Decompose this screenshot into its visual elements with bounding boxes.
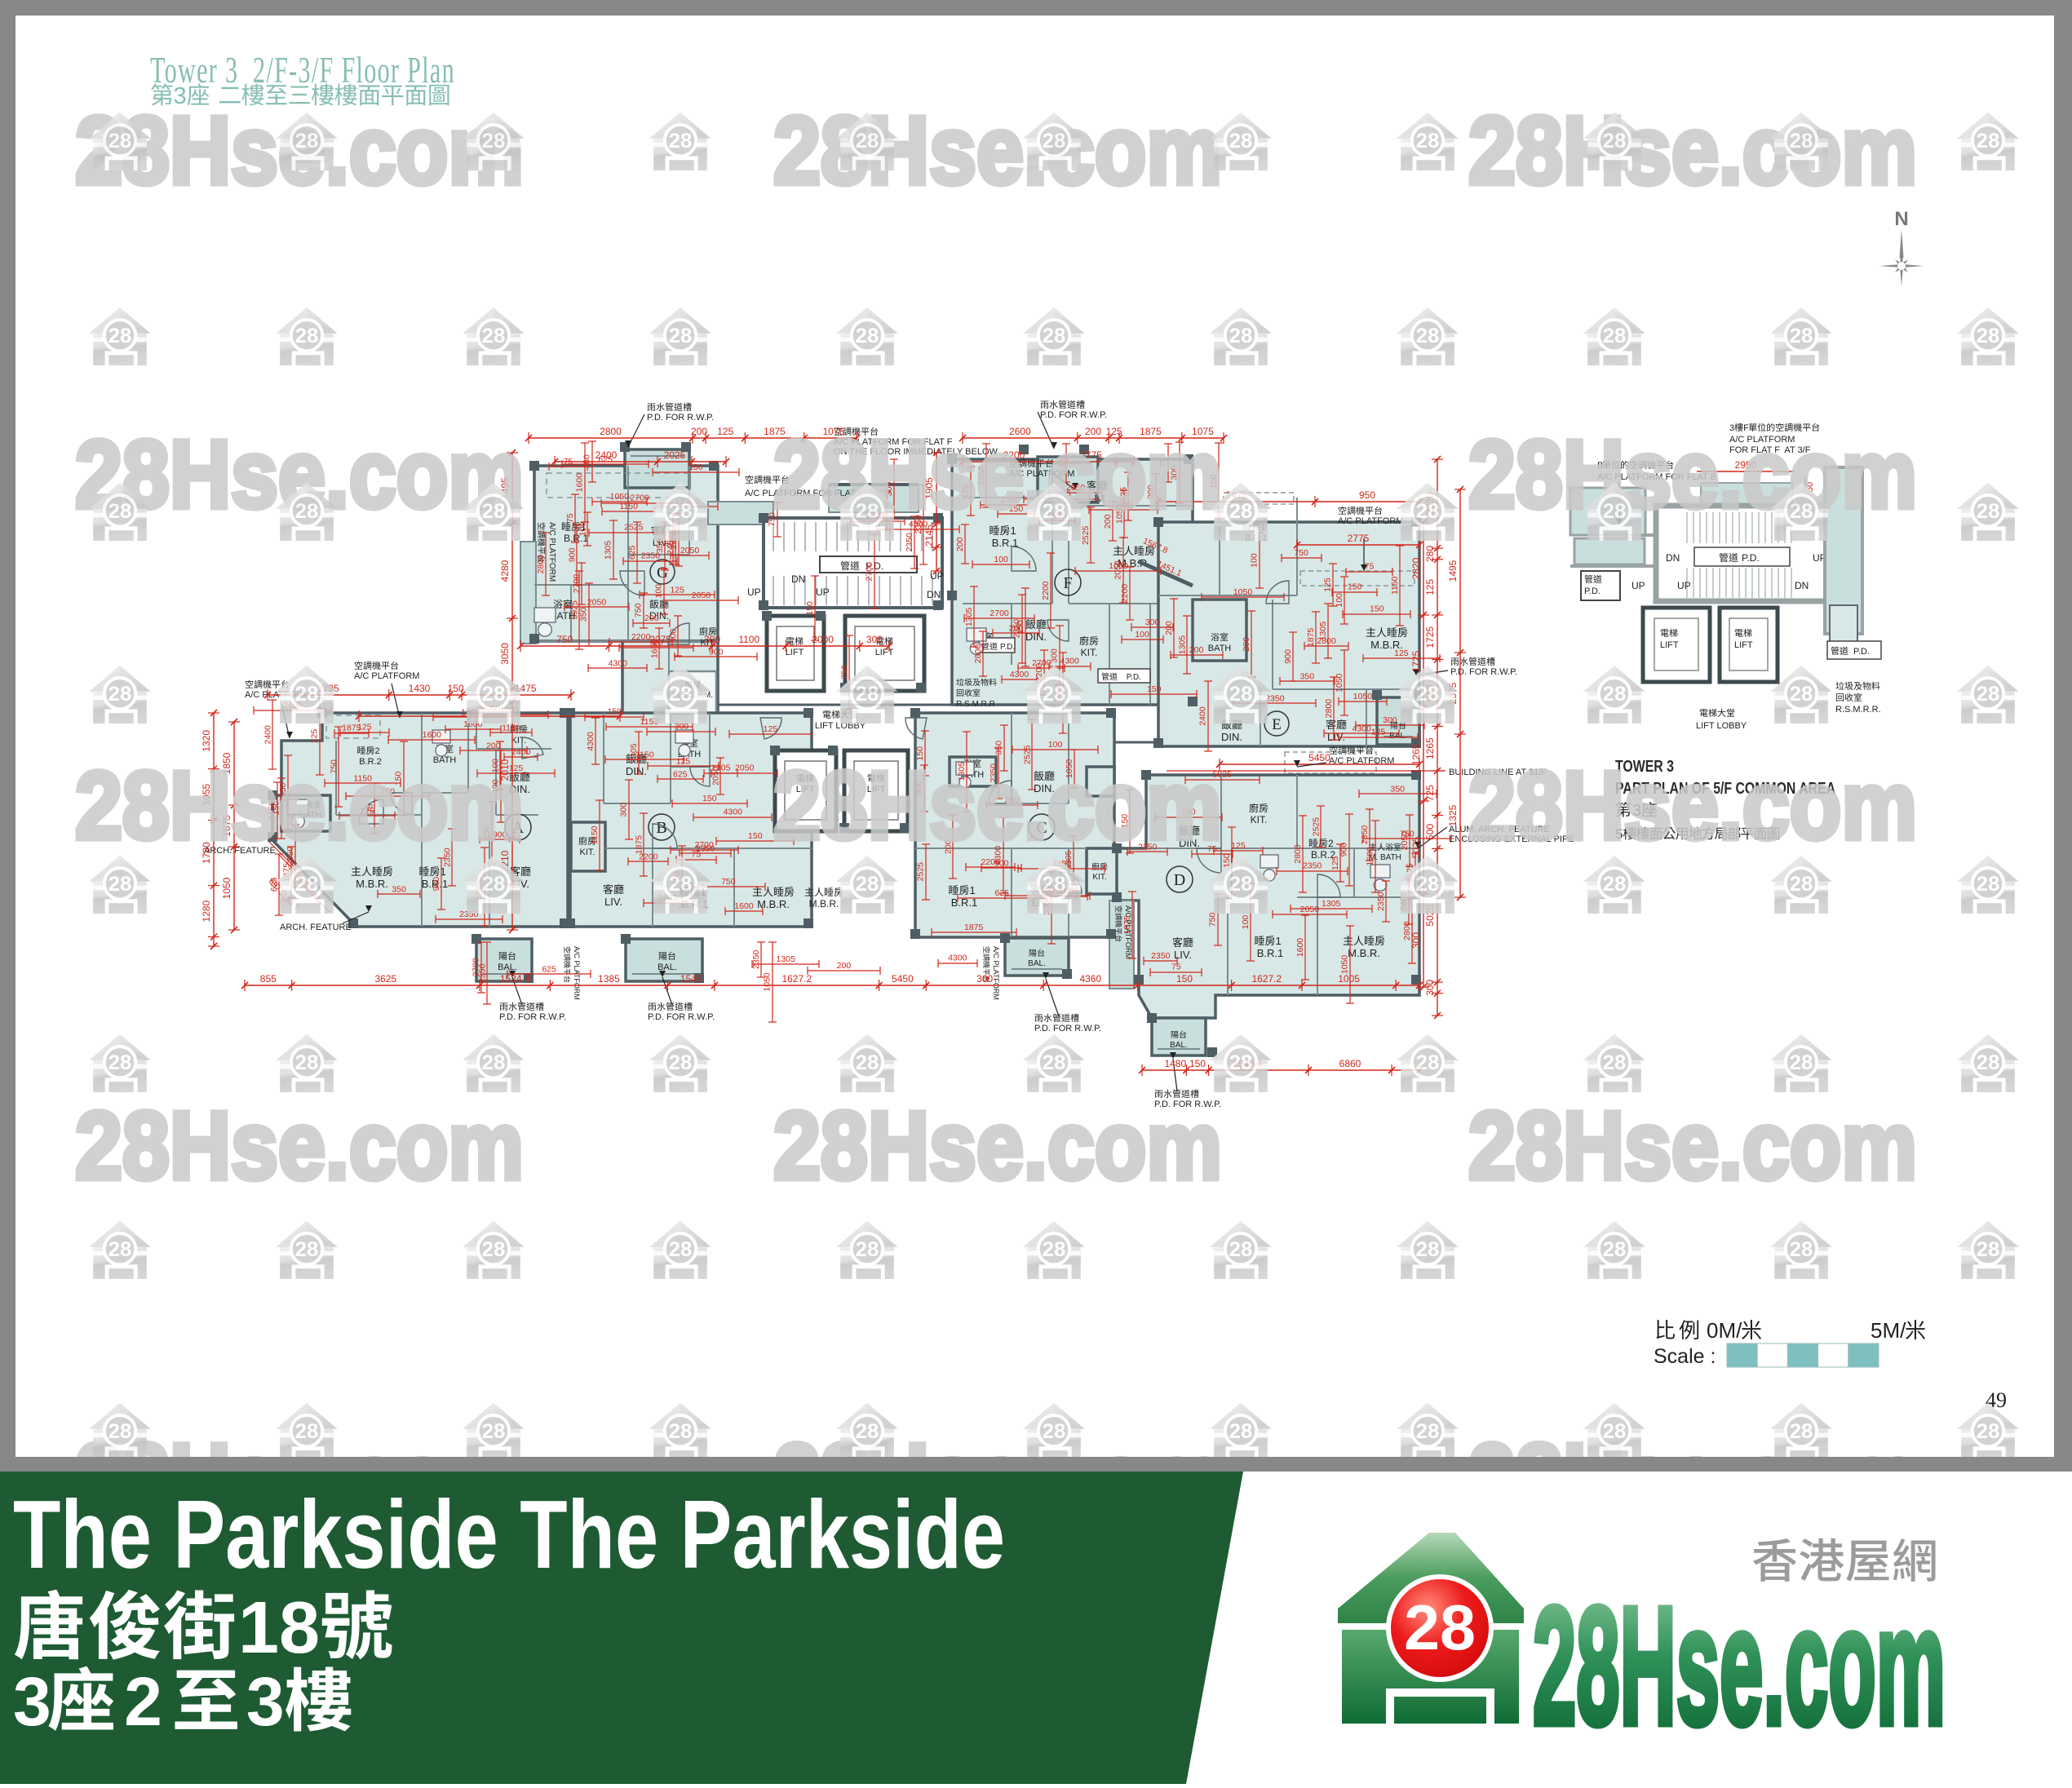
svg-text:1050: 1050 (610, 492, 630, 502)
svg-text:1305: 1305 (1322, 899, 1341, 909)
svg-text:1100: 1100 (738, 634, 759, 645)
svg-text:UP: UP (1677, 580, 1691, 591)
svg-text:1305: 1305 (604, 540, 613, 560)
svg-text:28Hse.com: 28Hse.com (1468, 1092, 1917, 1200)
svg-text:1600: 1600 (649, 640, 659, 659)
svg-text:UP: UP (816, 586, 830, 598)
svg-text:350: 350 (1300, 671, 1315, 681)
svg-text:2700: 2700 (990, 609, 1009, 618)
svg-text:2: 2 (1328, 838, 1334, 849)
svg-text:900: 900 (994, 858, 1009, 868)
svg-text:125: 125 (1330, 856, 1340, 870)
svg-text:75: 75 (1365, 562, 1375, 572)
svg-text:1875: 1875 (342, 724, 361, 733)
svg-text:2050: 2050 (1300, 905, 1320, 914)
svg-text:100: 100 (688, 462, 703, 472)
svg-text:28Hse.com: 28Hse.com (1468, 97, 1917, 205)
svg-text:2050: 2050 (692, 591, 711, 600)
svg-text:5450: 5450 (1308, 752, 1330, 763)
svg-text:100: 100 (1241, 915, 1251, 930)
svg-text:UP: UP (1631, 580, 1645, 591)
svg-text:1305: 1305 (629, 743, 639, 763)
svg-text:4300: 4300 (1353, 724, 1372, 733)
svg-text:125: 125 (670, 585, 684, 595)
svg-text:300: 300 (704, 634, 720, 645)
svg-text:2200: 2200 (1120, 584, 1130, 604)
svg-text:100: 100 (654, 584, 664, 599)
svg-text:150: 150 (1370, 604, 1384, 614)
svg-text:BAL.: BAL. (1028, 959, 1046, 968)
svg-text:1627.2: 1627.2 (1251, 973, 1282, 985)
svg-text:100: 100 (578, 522, 587, 537)
svg-text:3625: 3625 (374, 973, 396, 985)
svg-text:350: 350 (579, 607, 589, 622)
svg-text:5025: 5025 (1410, 836, 1422, 858)
svg-text:100: 100 (1335, 593, 1344, 608)
svg-text:1385: 1385 (598, 973, 620, 985)
svg-text:350: 350 (392, 884, 406, 894)
svg-text:300: 300 (1145, 617, 1160, 627)
svg-text:1875: 1875 (1122, 915, 1132, 935)
svg-text:2700: 2700 (865, 562, 874, 582)
svg-text:DN: DN (791, 573, 805, 585)
svg-text:300: 300 (866, 634, 883, 645)
svg-text:1495: 1495 (1447, 560, 1459, 582)
svg-text:A/C PLATFORM: A/C PLATFORM (992, 946, 1000, 1000)
svg-text:2350: 2350 (751, 949, 761, 969)
svg-text:R.S.M.R.R: R.S.M.R.R (956, 700, 995, 709)
svg-text:1305: 1305 (1318, 622, 1328, 641)
svg-text:28Hse.com: 28Hse.com (1468, 421, 1917, 529)
svg-text:200: 200 (644, 613, 659, 623)
svg-text:1600: 1600 (1295, 938, 1305, 958)
svg-text:2800: 2800 (1324, 699, 1334, 719)
svg-text:M.B.R.: M.B.R. (809, 898, 839, 909)
svg-text:2050: 2050 (711, 766, 720, 786)
svg-text:P.D.: P.D. (1000, 643, 1015, 652)
svg-text:300: 300 (976, 973, 993, 985)
svg-text:750: 750 (1400, 829, 1415, 839)
svg-text:3: 3 (13, 1663, 51, 1740)
svg-text:300: 300 (1424, 980, 1436, 996)
svg-text:LIFT: LIFT (786, 648, 804, 657)
svg-text:125: 125 (1424, 579, 1436, 595)
svg-text:D: D (1174, 871, 1185, 889)
svg-text:1600: 1600 (734, 901, 754, 911)
svg-text:150: 150 (607, 707, 622, 717)
svg-text:2350: 2350 (1376, 892, 1386, 911)
svg-text:150: 150 (448, 683, 464, 694)
svg-text:2525: 2525 (1311, 817, 1321, 837)
svg-text:300: 300 (668, 629, 678, 644)
svg-text:855: 855 (260, 973, 277, 985)
svg-text:100: 100 (1135, 630, 1149, 640)
svg-text:2350: 2350 (1303, 861, 1322, 871)
svg-text:P.D.: P.D. (1853, 647, 1870, 657)
svg-text:2800: 2800 (1293, 844, 1303, 864)
svg-text:200: 200 (1164, 621, 1174, 635)
svg-text:750: 750 (721, 877, 736, 887)
svg-text:1050: 1050 (763, 972, 773, 992)
svg-text:150: 150 (702, 794, 717, 803)
svg-text:750: 750 (839, 665, 849, 679)
svg-text:1: 1 (1276, 935, 1282, 947)
svg-text:A/C PLATFORM: A/C PLATFORM (1329, 756, 1394, 766)
svg-text:1050: 1050 (1340, 955, 1350, 975)
svg-text:2050: 2050 (587, 597, 607, 607)
svg-text:4360: 4360 (1079, 973, 1101, 985)
svg-text:2525: 2525 (916, 862, 926, 882)
svg-text:2525: 2525 (624, 523, 644, 533)
svg-text:DIN.: DIN. (626, 765, 647, 777)
svg-text:P.D. FOR R.W.P.: P.D. FOR R.W.P. (647, 413, 714, 423)
svg-text:A/C PLATFORM: A/C PLATFORM (547, 522, 556, 582)
svg-text:P.D. FOR R.W.P.: P.D. FOR R.W.P. (648, 1012, 715, 1022)
svg-text:DIN.: DIN. (1221, 731, 1242, 743)
svg-text:18: 18 (238, 1587, 320, 1669)
svg-text:KIT.: KIT. (580, 848, 595, 857)
svg-text:1050: 1050 (1109, 561, 1128, 571)
svg-text:2775: 2775 (1348, 533, 1370, 544)
svg-text:3050: 3050 (499, 643, 511, 665)
svg-text:75: 75 (1171, 963, 1181, 972)
svg-text:2050: 2050 (680, 546, 700, 555)
svg-text:150: 150 (805, 601, 815, 616)
svg-text:6860: 6860 (1339, 1058, 1361, 1069)
svg-text:LIV.: LIV. (604, 896, 622, 908)
svg-text:750: 750 (1294, 548, 1308, 558)
svg-text:150: 150 (748, 831, 763, 841)
svg-text:1875: 1875 (634, 835, 644, 855)
svg-text:75: 75 (692, 850, 702, 860)
svg-text:1305: 1305 (964, 608, 974, 627)
svg-text:100: 100 (994, 555, 1008, 564)
svg-text:125: 125 (1394, 648, 1409, 658)
svg-text:1320: 1320 (201, 730, 212, 752)
svg-text:M.B.R.: M.B.R. (757, 898, 790, 910)
svg-text:1050: 1050 (1233, 587, 1253, 597)
svg-text:125: 125 (764, 724, 778, 734)
svg-text:DN: DN (1666, 552, 1680, 564)
svg-text:150: 150 (1189, 1058, 1206, 1069)
svg-text:4300: 4300 (609, 658, 628, 668)
svg-text:4300: 4300 (724, 808, 743, 817)
svg-text:100: 100 (1250, 553, 1260, 568)
svg-text:5925: 5925 (569, 600, 579, 620)
svg-text:150: 150 (1016, 620, 1025, 635)
svg-text:R.S.M.R.R.: R.S.M.R.R. (1835, 705, 1881, 715)
svg-text:1430: 1430 (409, 683, 431, 694)
svg-text:150: 150 (1348, 582, 1362, 592)
svg-text:2: 2 (114, 1663, 172, 1740)
svg-text:625: 625 (598, 454, 613, 464)
svg-text:1600: 1600 (423, 730, 442, 740)
svg-text:1150: 1150 (590, 825, 600, 844)
svg-text:2350: 2350 (1265, 693, 1285, 703)
svg-text:A/C PLATFORM: A/C PLATFORM (573, 946, 581, 1000)
svg-text:750: 750 (556, 634, 573, 645)
svg-text:28Hse.com: 28Hse.com (773, 1092, 1222, 1200)
svg-text:LIFT: LIFT (875, 648, 894, 657)
svg-text:0M/: 0M/ (1707, 1318, 1742, 1343)
svg-text:200: 200 (1189, 645, 1204, 655)
svg-text:The Parkside The Parkside: The Parkside The Parkside (13, 1480, 1005, 1589)
svg-text:750: 750 (634, 603, 644, 617)
svg-text:DIN.: DIN. (1025, 631, 1047, 643)
svg-text:2350: 2350 (1151, 951, 1171, 961)
svg-text:N: N (1894, 208, 1908, 230)
svg-text:BAL.: BAL. (1170, 1041, 1188, 1050)
svg-text:1725: 1725 (1424, 626, 1436, 648)
svg-text:200: 200 (837, 961, 852, 971)
svg-text:LIV.: LIV. (1174, 949, 1192, 961)
svg-text:2400: 2400 (263, 725, 272, 745)
svg-text:625: 625 (627, 545, 637, 560)
svg-text:G: G (657, 564, 668, 582)
svg-text:B.R.1: B.R.1 (1257, 947, 1284, 959)
svg-text:2350: 2350 (1360, 825, 1370, 845)
svg-text:1600: 1600 (575, 473, 585, 493)
svg-text:280: 280 (1424, 546, 1436, 562)
svg-text:900: 900 (1339, 843, 1349, 857)
svg-text:4300: 4300 (586, 732, 595, 751)
svg-text:900: 900 (432, 877, 441, 892)
svg-text:2800: 2800 (600, 426, 622, 437)
svg-text:2050: 2050 (735, 763, 755, 773)
svg-text:2025: 2025 (664, 449, 686, 461)
svg-text:28Hse.com: 28Hse.com (75, 752, 524, 860)
svg-text:1265: 1265 (1410, 743, 1422, 765)
svg-text:2200: 2200 (631, 632, 651, 642)
svg-text:625: 625 (994, 888, 1009, 898)
svg-text:150: 150 (582, 454, 592, 469)
svg-text:A/C PLATFORM: A/C PLATFORM (354, 671, 419, 681)
svg-text:M.B.R.: M.B.R. (356, 878, 388, 890)
svg-text:DN: DN (927, 589, 941, 600)
svg-text:P.D. FOR R.W.P.: P.D. FOR R.W.P. (1040, 410, 1107, 420)
svg-text:125: 125 (1231, 841, 1246, 851)
svg-text:125: 125 (1323, 578, 1333, 592)
svg-text:3: 3 (239, 1663, 285, 1740)
svg-text:1050: 1050 (1353, 692, 1373, 701)
svg-text:200: 200 (486, 741, 501, 750)
svg-text:2350: 2350 (905, 533, 914, 552)
svg-text:350: 350 (1390, 784, 1405, 794)
svg-text:1600: 1600 (1366, 847, 1375, 866)
svg-text:LIFT: LIFT (1660, 640, 1679, 650)
svg-text:UP: UP (930, 570, 944, 582)
svg-text:1: 1 (970, 884, 976, 896)
svg-text:LIFT LOBBY: LIFT LOBBY (1696, 721, 1747, 731)
svg-text:75: 75 (565, 513, 575, 523)
svg-text:UP: UP (747, 586, 761, 598)
svg-text:28Hse.com: 28Hse.com (1533, 1573, 1946, 1759)
svg-text:1725: 1725 (1410, 650, 1422, 672)
svg-text:300: 300 (1050, 648, 1060, 663)
svg-text:1305: 1305 (777, 954, 796, 964)
svg-text:28Hse.com: 28Hse.com (75, 1092, 524, 1200)
svg-text:150: 150 (1176, 973, 1193, 985)
svg-text:KIT.: KIT. (1092, 873, 1106, 882)
svg-text:2820: 2820 (1410, 557, 1422, 579)
svg-text:28Hse.com: 28Hse.com (1468, 752, 1917, 860)
svg-text:5M/: 5M/ (1871, 1318, 1906, 1343)
svg-text:A/C PLATFORM: A/C PLATFORM (1338, 516, 1403, 526)
svg-text:5450: 5450 (892, 973, 914, 985)
svg-text:2350: 2350 (477, 963, 487, 983)
svg-text:900: 900 (567, 547, 577, 562)
svg-text:2400: 2400 (1198, 706, 1208, 726)
svg-text:DN: DN (1795, 580, 1809, 591)
svg-text:P.D.: P.D. (1124, 673, 1141, 682)
svg-text:1265: 1265 (1424, 737, 1436, 759)
svg-text:75: 75 (564, 457, 573, 467)
svg-text:625: 625 (269, 877, 279, 892)
svg-text:4300: 4300 (1010, 670, 1029, 679)
svg-text:P.D. FOR R.W.P.: P.D. FOR R.W.P. (1034, 1024, 1101, 1033)
svg-text:1524.4: 1524.4 (500, 973, 530, 985)
svg-text:4280: 4280 (499, 560, 511, 582)
svg-text:625: 625 (673, 769, 688, 779)
svg-text:1627.2: 1627.2 (781, 973, 812, 985)
svg-text:200: 200 (691, 426, 707, 437)
svg-text:1280: 1280 (201, 900, 212, 922)
svg-text:1050: 1050 (1335, 673, 1344, 693)
svg-text:200: 200 (1242, 637, 1251, 652)
svg-text:M.B.R.: M.B.R. (1348, 947, 1380, 959)
svg-text:900: 900 (709, 647, 724, 657)
svg-text:4300: 4300 (948, 954, 967, 963)
svg-text:E: E (1272, 716, 1282, 733)
svg-text:Scale :: Scale : (1654, 1345, 1716, 1368)
svg-text:F: F (1063, 574, 1072, 592)
svg-text:125: 125 (676, 756, 691, 766)
svg-text:1875: 1875 (1306, 628, 1316, 648)
svg-text:1305: 1305 (1177, 635, 1187, 655)
svg-text:200: 200 (955, 537, 965, 551)
svg-text:1875: 1875 (964, 923, 984, 932)
svg-text:KIT.: KIT. (1081, 647, 1098, 658)
svg-text:950: 950 (1359, 489, 1375, 501)
svg-text:1150: 1150 (1390, 576, 1400, 595)
svg-text:Tower 3 2/F-3/F Floor Plan: Tower 3 2/F-3/F Floor Plan (150, 49, 455, 91)
svg-text:150: 150 (1147, 684, 1162, 694)
svg-text:28: 28 (1404, 1591, 1476, 1663)
svg-text:2800: 2800 (536, 555, 546, 574)
svg-text:2700: 2700 (630, 493, 649, 503)
svg-text:125: 125 (310, 729, 320, 744)
svg-text:2200: 2200 (1041, 581, 1051, 600)
svg-text:P.D. FOR R.W.P.: P.D. FOR R.W.P. (499, 1012, 566, 1022)
svg-text:1480: 1480 (1164, 1058, 1186, 1069)
svg-text:28Hse.com: 28Hse.com (773, 752, 1222, 860)
svg-text:625: 625 (542, 964, 556, 974)
svg-text:P.D.: P.D. (1584, 586, 1600, 596)
svg-text:BATH: BATH (1208, 644, 1232, 653)
svg-text:1150: 1150 (502, 723, 520, 732)
svg-text:750: 750 (1208, 913, 1218, 927)
svg-text:1545: 1545 (680, 973, 702, 985)
svg-text:125: 125 (717, 426, 733, 437)
svg-text:500: 500 (1424, 824, 1436, 840)
svg-text:100: 100 (1048, 740, 1063, 750)
svg-text:ARCH. FEATURE: ARCH. FEATURE (280, 923, 352, 932)
svg-text:1050: 1050 (221, 877, 232, 899)
svg-text:LIFT: LIFT (1734, 640, 1753, 650)
svg-text:125: 125 (1371, 728, 1386, 737)
svg-text:300: 300 (1383, 715, 1397, 725)
svg-text:P.D.: P.D. (1742, 552, 1760, 564)
svg-text:KIT.: KIT. (1251, 814, 1268, 825)
svg-text:1325: 1325 (1447, 804, 1459, 826)
svg-text:300: 300 (619, 803, 629, 817)
svg-text:900: 900 (1283, 649, 1293, 664)
